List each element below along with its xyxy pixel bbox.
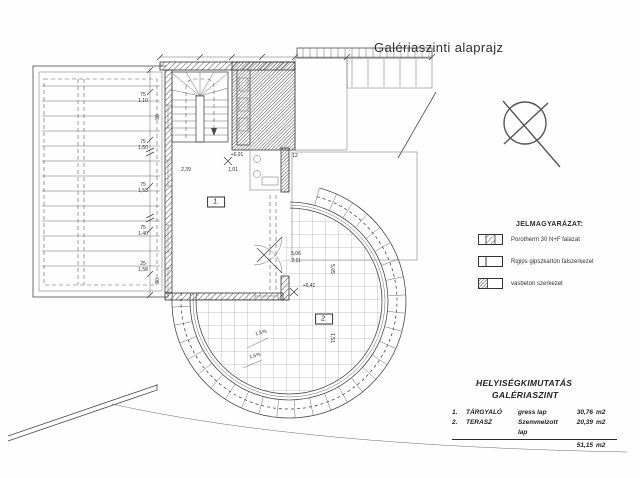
north-arrow-icon	[495, 95, 575, 180]
page-title: Galériaszinti alaprajz	[374, 40, 503, 55]
drawing-sheet: Galériaszinti alaprajz JELMAGYARÁZAT: Po…	[0, 0, 640, 478]
legend-item-label: Porotherm 30 N+F falazat	[511, 237, 580, 243]
room-area-unit: m2	[596, 418, 612, 438]
dim-label: 1,10	[138, 98, 148, 104]
schedule-row: 1. TÁRGYALÓ gress lap 30,76 m2	[452, 408, 617, 418]
room-area: 30,76	[568, 408, 596, 418]
reinforced-concrete-swatch-icon	[478, 278, 503, 289]
dim-label: 1,40	[138, 231, 148, 237]
room-name: TÁRGYALÓ	[466, 408, 518, 418]
room-area-unit: m2	[596, 408, 612, 418]
dim-label: +6,91	[231, 152, 244, 158]
room-area: 20,39	[568, 418, 596, 438]
legend-item-vasbeton: vasbeton szerkezet	[478, 278, 628, 289]
schedule-subtitle: GALÉRIASZINT	[492, 390, 617, 400]
hatched-roof-block	[232, 62, 295, 150]
room-finish: gress lap	[518, 408, 568, 418]
dim-label: 90	[155, 114, 161, 120]
room-schedule: HELYISÉGKIMUTATÁS GALÉRIASZINT 1. TÁRGYA…	[452, 378, 617, 451]
dim-label: 90	[155, 278, 161, 284]
room-name: TERASZ	[466, 418, 518, 438]
legend-item-label: vasbeton szerkezet	[511, 281, 563, 287]
dim-label: 1,01	[228, 167, 238, 173]
schedule-title: HELYISÉGKIMUTATÁS	[476, 378, 617, 388]
legend-item-porotherm: Porotherm 30 N+F falazat	[478, 234, 628, 245]
schedule-row: 2. TERASZ Szemmelzott lap 20,39 m2	[452, 418, 617, 438]
dim-label: 2,39	[181, 167, 191, 173]
dim-label: +6,41	[303, 283, 316, 289]
dim-label: 1,58	[138, 267, 148, 273]
dim-label: 1,51	[329, 333, 335, 343]
room-finish: Szemmelzott lap	[518, 418, 568, 438]
total-area-unit: m2	[596, 440, 612, 451]
dim-label: 1,53	[138, 188, 148, 194]
dim-label: 12	[292, 153, 298, 159]
room-number-box: 1.	[207, 197, 225, 208]
schedule-total-row: 51,15 m2	[452, 440, 617, 451]
legend-title: JELMAGYARÁZAT:	[516, 221, 628, 228]
room-number-box: 2.	[315, 314, 333, 325]
rigips-partition-swatch-icon	[478, 256, 503, 267]
dim-label: 1,50	[138, 145, 148, 151]
dim-label: 5,06	[291, 251, 301, 257]
total-area: 51,15	[568, 440, 596, 451]
legend-item-label: Rigips gipszkarton falszerkezet	[511, 259, 594, 265]
dim-label: 2,11	[291, 258, 300, 264]
porotherm-hatch-swatch-icon	[478, 234, 503, 245]
room-number: 1.	[452, 408, 466, 418]
room-number: 2.	[452, 418, 466, 438]
dim-label: 5,05	[329, 264, 335, 274]
legend-item-rigips: Rigips gipszkarton falszerkezet	[478, 256, 628, 267]
legend: JELMAGYARÁZAT: Porotherm 30 N+F falazat …	[478, 221, 628, 300]
